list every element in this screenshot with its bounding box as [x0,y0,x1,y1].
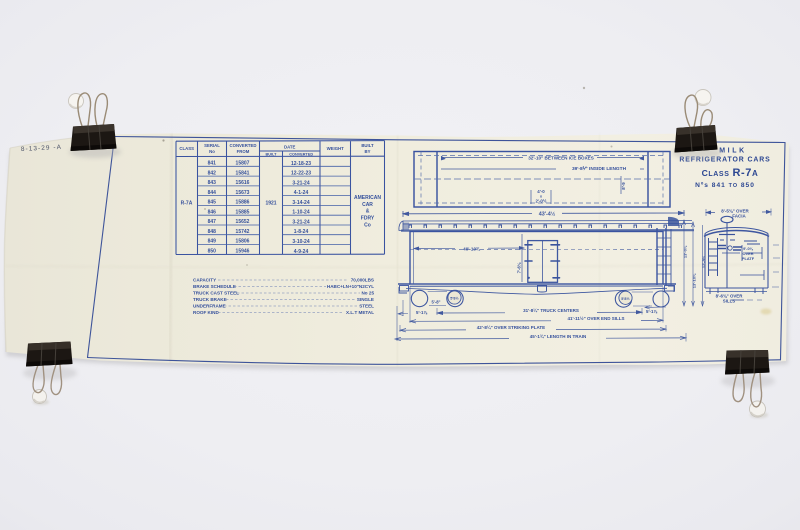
svg-text:MILK: MILK [719,148,747,155]
svg-text:CAPACITY: CAPACITY [193,278,216,283]
svg-text:842: 842 [208,170,217,176]
svg-text:847: 847 [208,219,217,225]
svg-text:TRUCK BRAKE: TRUCK BRAKE [193,297,227,302]
svg-text:15841: 15841 [236,170,250,176]
svg-text:3-21-24: 3-21-24 [292,220,309,226]
svg-text:No 25: No 25 [361,291,374,296]
svg-text:Nºs 841 TO 850: Nºs 841 TO 850 [695,182,755,189]
svg-text:&: & [366,209,370,215]
svg-text:CONVERTED: CONVERTED [289,153,313,157]
svg-text:845: 845 [208,200,217,206]
svg-text:15806: 15806 [236,239,250,245]
svg-text:FROM: FROM [237,149,250,154]
svg-text:39'-8⅟" INSIDE LENGTH: 39'-8⅟" INSIDE LENGTH [572,165,627,172]
svg-text:32'-10" BETWEEN ICE BOXES: 32'-10" BETWEEN ICE BOXES [528,155,594,160]
svg-text:843: 843 [208,180,217,186]
svg-text:848: 848 [208,229,217,235]
svg-text:12-22-23: 12-22-23 [291,171,311,177]
svg-text:15742: 15742 [236,229,250,235]
svg-text:BUILT: BUILT [266,153,278,157]
svg-text:FDRY: FDRY [361,216,375,222]
svg-text:844: 844 [208,190,217,196]
svg-text:42'-8¼" OVER STRIKING PLATE: 42'-8¼" OVER STRIKING PLATE [477,324,545,330]
svg-text:AMERICAN: AMERICAN [354,195,381,201]
svg-text:1-8-24: 1-8-24 [294,229,309,235]
svg-text:41'-11½" OVER END SILLS: 41'-11½" OVER END SILLS [568,315,625,321]
svg-text:TRUCK CAST STEEL: TRUCK CAST STEEL [193,291,239,296]
svg-text:8'-9: 8'-9 [621,182,626,190]
svg-text:ROOF KIND: ROOF KIND [193,310,219,315]
svg-text:3-14-24: 3-14-24 [292,200,309,206]
svg-text:PLATF: PLATF [742,256,755,261]
svg-text:15807: 15807 [236,161,250,167]
svg-text:R-7A: R-7A [181,201,193,207]
svg-text:15946: 15946 [236,249,250,255]
svg-text:15886: 15886 [236,200,250,206]
svg-text:850: 850 [208,249,217,255]
svg-text:UNDERFRAME: UNDERFRAME [193,304,226,309]
svg-text:3-10-24: 3-10-24 [292,239,309,245]
svg-text:WEIGHT: WEIGHT [327,146,345,151]
svg-text:BY: BY [365,149,371,154]
svg-text:Co: Co [364,223,371,229]
svg-text:12-18-23: 12-18-23 [291,161,311,167]
svg-text:31'-8¼" TRUCK CENTERS: 31'-8¼" TRUCK CENTERS [523,307,579,313]
svg-text:No: No [209,149,215,154]
svg-text:5'-8": 5'-8" [431,299,440,304]
svg-text:5'-1⅞: 5'-1⅞ [416,310,427,315]
svg-text:BRAKE SCHEDULE: BRAKE SCHEDULE [193,284,236,289]
svg-text:5’8½: 5’8½ [450,297,458,301]
svg-text:3-21-24: 3-21-24 [292,180,309,186]
svg-text:15673: 15673 [236,190,250,196]
svg-text:1-10-24: 1-10-24 [292,210,309,216]
svg-text:841: 841 [208,161,217,167]
svg-text:5’8½: 5’8½ [621,297,629,301]
svg-text:SERIAL: SERIAL [204,143,220,148]
svg-text:FACIA: FACIA [732,213,746,218]
svg-text:CAR: CAR [362,202,373,208]
svg-text:40'-10¾: 40'-10¾ [463,245,481,251]
svg-text:4-1-24: 4-1-24 [294,190,309,196]
svg-text:4-9-24: 4-9-24 [294,249,309,255]
svg-text:70,000LBS: 70,000LBS [351,278,374,283]
svg-text:45'-1¾" LENGTH IN TRAIN: 45'-1¾" LENGTH IN TRAIN [530,333,586,339]
svg-text:SILLS: SILLS [723,299,736,304]
svg-text:43'-4½: 43'-4½ [539,211,556,218]
svg-text:13'-0⅛: 13'-0⅛ [683,245,688,258]
svg-text:X.L.T METAL: X.L.T METAL [346,310,374,315]
svg-text:STEEL: STEEL [359,304,374,309]
svg-text:13'-10⅜: 13'-10⅜ [692,273,697,288]
svg-text:BUILT: BUILT [361,143,374,148]
svg-text:849: 849 [208,239,217,245]
svg-text:1921: 1921 [265,201,276,207]
svg-text:15652: 15652 [236,219,250,225]
svg-text:7'-6⅛: 7'-6⅛ [517,262,522,273]
svg-text:846: 846 [208,209,217,215]
svg-text:15885: 15885 [236,209,250,215]
svg-text:CLASS: CLASS [179,146,194,151]
svg-text:CONVERTED: CONVERTED [230,143,257,148]
svg-text:HABC+LN+10"N2CYL: HABC+LN+10"N2CYL [327,284,374,289]
svg-text:2'-0½: 2'-0½ [535,199,546,204]
svg-text:SINGLE: SINGLE [357,297,374,302]
svg-text:DATE: DATE [284,145,296,150]
svg-text:15616: 15616 [236,180,250,186]
svg-text:5'-1⅞: 5'-1⅞ [646,309,657,314]
